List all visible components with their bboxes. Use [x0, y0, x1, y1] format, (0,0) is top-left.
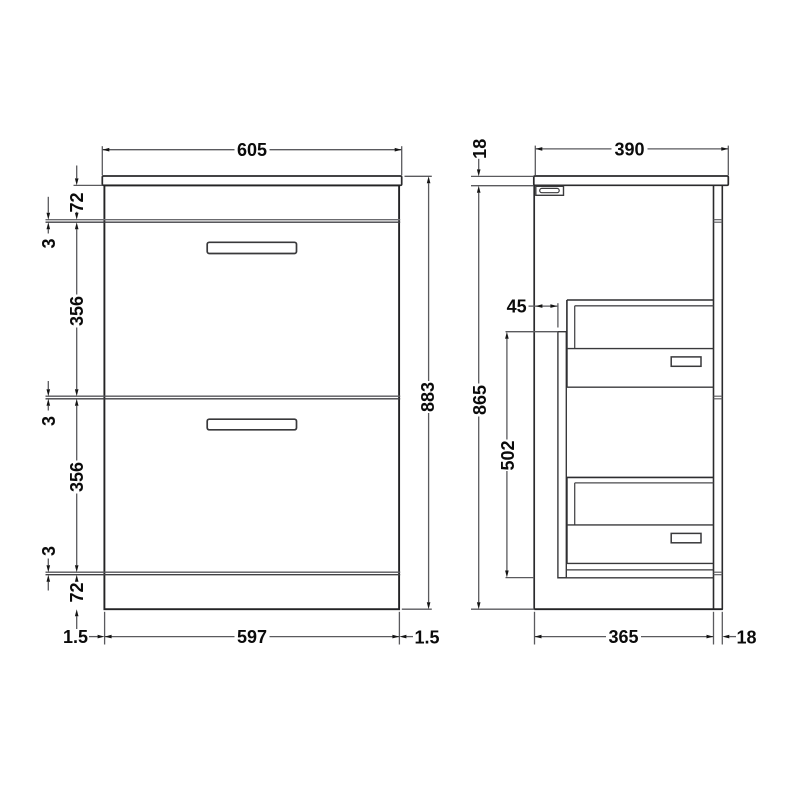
- svg-text:356: 356: [67, 462, 87, 492]
- svg-text:502: 502: [498, 440, 518, 470]
- svg-text:72: 72: [67, 192, 87, 212]
- svg-text:3: 3: [39, 238, 59, 248]
- svg-text:356: 356: [67, 296, 87, 326]
- svg-text:1.5: 1.5: [63, 627, 88, 647]
- svg-text:365: 365: [608, 627, 638, 647]
- svg-text:18: 18: [736, 628, 756, 648]
- svg-text:883: 883: [418, 382, 438, 412]
- svg-text:18: 18: [470, 139, 490, 159]
- svg-text:72: 72: [67, 582, 87, 602]
- svg-text:605: 605: [237, 140, 267, 160]
- svg-text:45: 45: [507, 297, 527, 317]
- svg-text:1.5: 1.5: [414, 628, 439, 648]
- svg-text:3: 3: [39, 416, 59, 426]
- svg-text:597: 597: [237, 627, 267, 647]
- svg-text:3: 3: [39, 546, 59, 556]
- svg-text:390: 390: [614, 139, 644, 159]
- svg-text:865: 865: [470, 385, 490, 415]
